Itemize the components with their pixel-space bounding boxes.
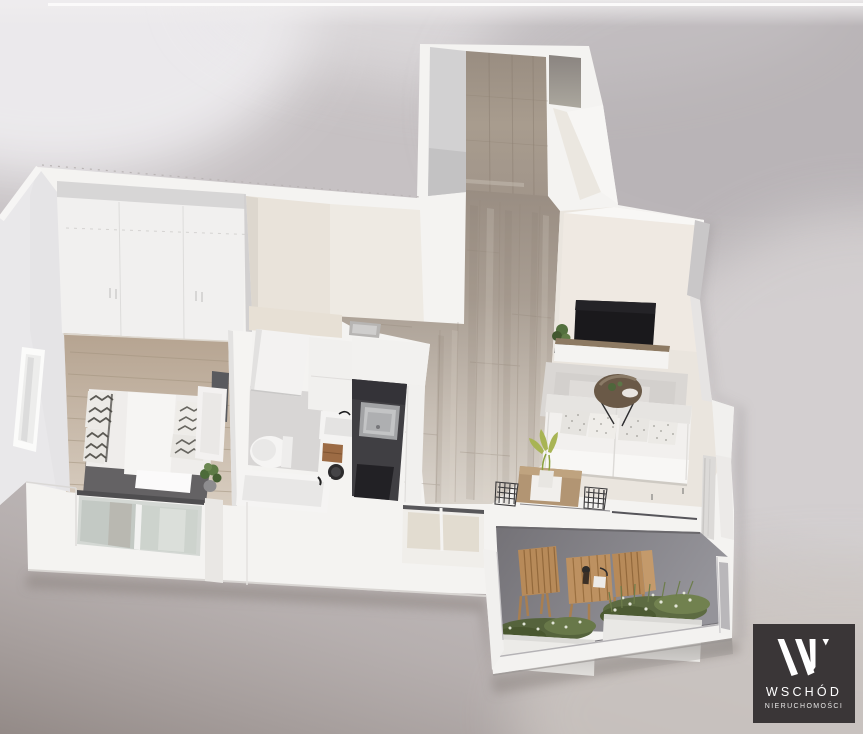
svg-text:NIERUCHOMOŚCI: NIERUCHOMOŚCI (765, 701, 843, 710)
svg-text:WSCHÓD: WSCHÓD (766, 684, 842, 699)
